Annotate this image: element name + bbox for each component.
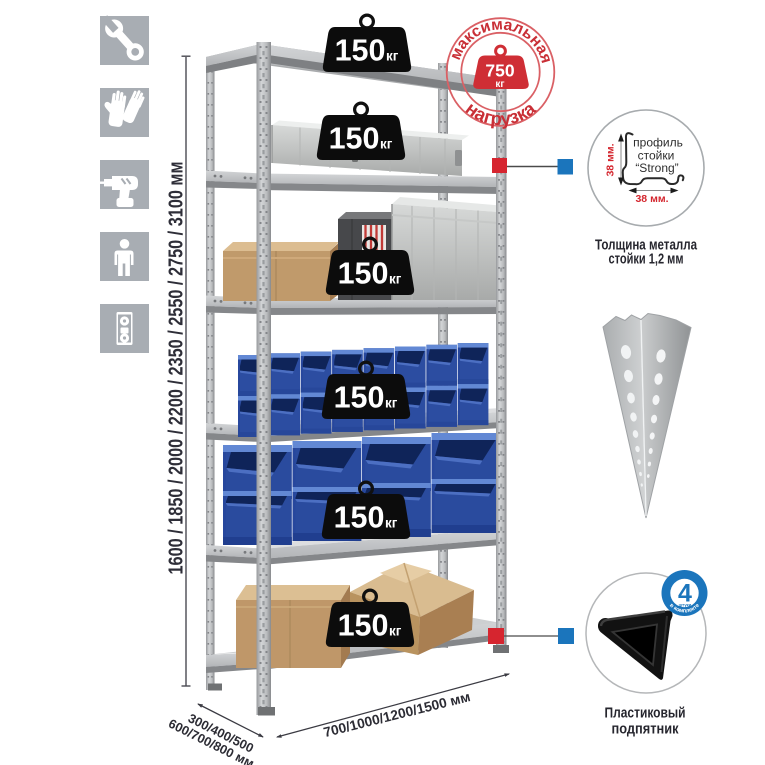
svg-text:38 мм.: 38 мм. xyxy=(635,193,668,205)
svg-text:1600 / 1850 / 2000 / 2200 / 23: 1600 / 1850 / 2000 / 2200 / 2350 / 2550 … xyxy=(166,162,188,575)
svg-text:38 мм.: 38 мм. xyxy=(605,143,617,176)
svg-text:“Strong”: “Strong” xyxy=(635,161,678,175)
svg-text:профиль: профиль xyxy=(633,136,683,150)
svg-text:кг: кг xyxy=(495,79,504,90)
svg-text:Пластиковый: Пластиковый xyxy=(605,706,686,722)
svg-text:750: 750 xyxy=(485,61,514,81)
svg-text:штуки: штуки xyxy=(679,603,692,608)
svg-text:подпятник: подпятник xyxy=(612,722,680,738)
svg-text:стойки 1,2 мм: стойки 1,2 мм xyxy=(609,251,684,268)
svg-text:700/1000/1200/1500 мм: 700/1000/1200/1500 мм xyxy=(322,689,472,740)
